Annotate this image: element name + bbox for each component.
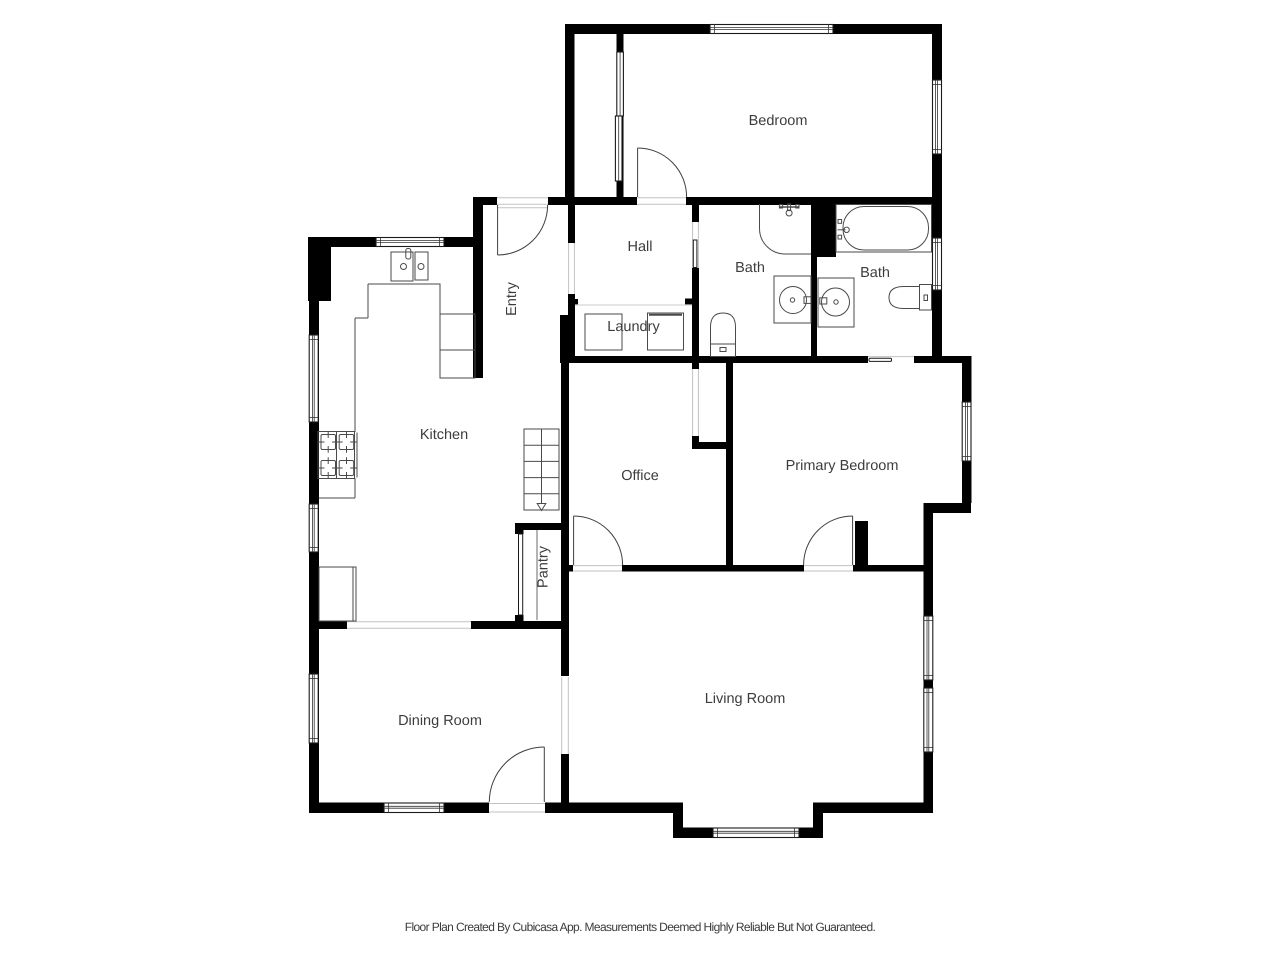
svg-text:Entry: Entry [504,281,520,316]
svg-text:Dining Room: Dining Room [398,713,482,729]
svg-text:Laundry: Laundry [607,319,660,335]
svg-text:Floor Plan Created By Cubicasa: Floor Plan Created By Cubicasa App. Meas… [405,920,876,934]
svg-text:Office: Office [621,468,659,484]
svg-text:Primary Bedroom: Primary Bedroom [786,458,899,474]
svg-text:Hall: Hall [628,239,653,255]
svg-text:Bath: Bath [735,260,765,276]
svg-text:Living Room: Living Room [705,691,786,707]
svg-text:Bath: Bath [860,265,890,281]
svg-text:Kitchen: Kitchen [420,427,468,443]
svg-text:Bedroom: Bedroom [749,113,808,129]
svg-text:Pantry: Pantry [536,545,552,588]
